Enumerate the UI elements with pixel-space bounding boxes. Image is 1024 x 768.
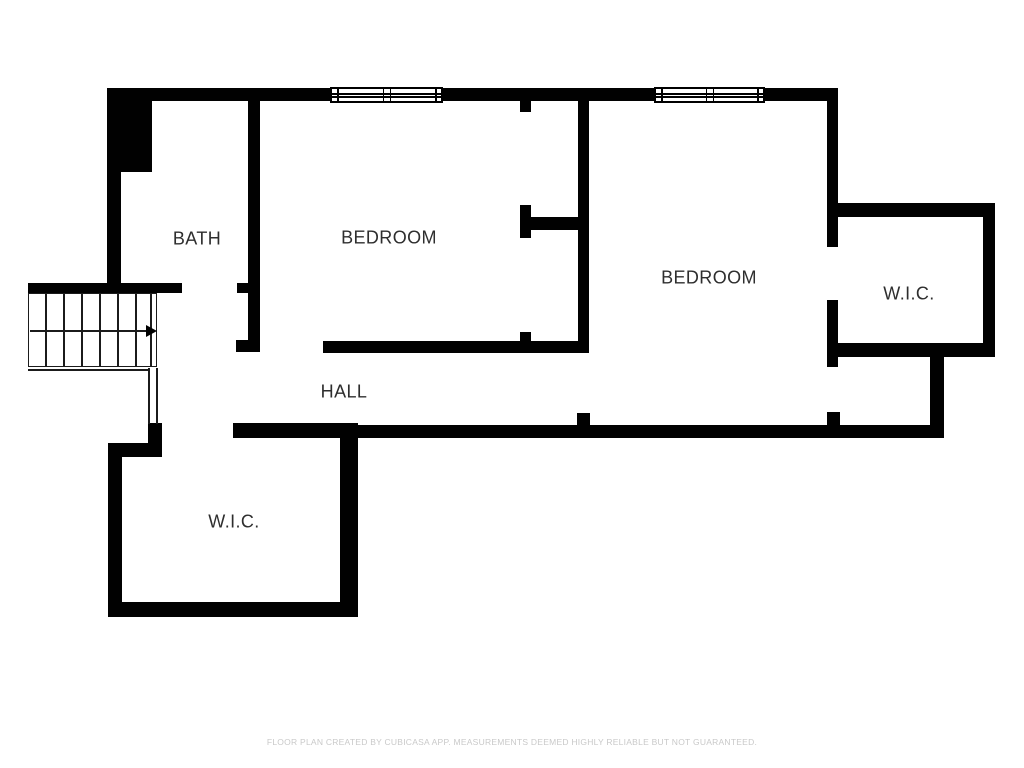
wall-segment bbox=[530, 217, 585, 230]
window-glazing-line bbox=[656, 96, 763, 98]
wall-segment bbox=[107, 170, 121, 285]
wall-segment bbox=[248, 99, 260, 351]
window-mullion-line bbox=[435, 89, 437, 101]
window-icon bbox=[654, 87, 765, 103]
wall-segment bbox=[108, 443, 122, 617]
window-mullion-line bbox=[706, 89, 708, 101]
wall-segment bbox=[236, 340, 260, 352]
window-mullion-line bbox=[661, 89, 663, 101]
wall-segment bbox=[983, 203, 995, 357]
window-mullion-line bbox=[383, 89, 385, 101]
window-glazing-line bbox=[332, 93, 441, 95]
room-label-hall: HALL bbox=[321, 382, 368, 403]
window-icon bbox=[330, 87, 443, 103]
stairs-direction-line bbox=[30, 330, 146, 332]
wall-segment bbox=[28, 283, 182, 293]
window-glazing-line bbox=[656, 93, 763, 95]
wall-segment bbox=[520, 332, 531, 343]
stairs-arrow-icon bbox=[146, 325, 157, 337]
window-mullion-line bbox=[337, 89, 339, 101]
room-label-bedroom-2: BEDROOM bbox=[661, 268, 757, 289]
room-label-bedroom-1: BEDROOM bbox=[341, 228, 437, 249]
window-mullion-line bbox=[713, 89, 715, 101]
wall-segment bbox=[520, 101, 531, 112]
room-label-wic-1: W.I.C. bbox=[883, 284, 934, 305]
wall-segment bbox=[577, 413, 590, 426]
wall-segment bbox=[827, 203, 995, 217]
wall-segment bbox=[578, 88, 589, 353]
floorplan-canvas: BATHBEDROOMBEDROOMW.I.C.HALLW.I.C. FLOOR… bbox=[0, 0, 1024, 768]
room-label-bath: BATH bbox=[173, 229, 221, 250]
wall-segment bbox=[827, 88, 838, 247]
footer-disclaimer: FLOOR PLAN CREATED BY CUBICASA APP. MEAS… bbox=[0, 737, 1024, 747]
room-label-wic-2: W.I.C. bbox=[208, 512, 259, 533]
understair-line bbox=[28, 369, 148, 371]
window-mullion-line bbox=[390, 89, 392, 101]
wall-segment bbox=[837, 343, 995, 357]
window-glazing-line bbox=[332, 96, 441, 98]
wall-segment bbox=[442, 88, 655, 101]
window-mullion-line bbox=[757, 89, 759, 101]
wall-segment bbox=[340, 423, 358, 617]
wall-segment bbox=[108, 602, 358, 617]
wall-segment bbox=[323, 341, 589, 353]
understair-line bbox=[148, 368, 150, 424]
wall-segment bbox=[930, 353, 944, 438]
understair-line bbox=[156, 368, 158, 424]
wall-segment bbox=[148, 423, 162, 457]
wall-segment bbox=[107, 88, 152, 172]
wall-segment bbox=[827, 412, 840, 426]
